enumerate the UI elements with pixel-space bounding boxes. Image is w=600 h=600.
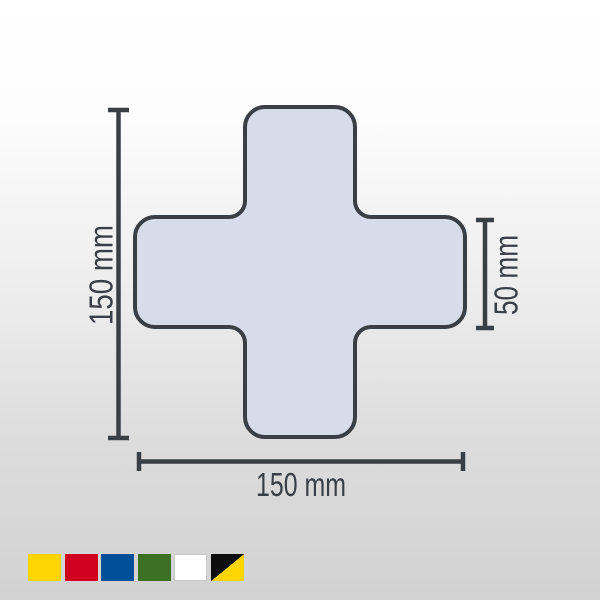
color-swatch-row xyxy=(28,554,244,581)
product-image: 150 mm 50 mm 150 mm xyxy=(0,0,600,600)
color-swatch-yellow[interactable] xyxy=(28,554,61,581)
color-swatch-white[interactable] xyxy=(174,554,207,581)
color-swatch-blue[interactable] xyxy=(101,554,134,581)
arm-width-dimension-label: 50 mm xyxy=(488,235,525,315)
color-swatch-red[interactable] xyxy=(65,554,98,581)
color-swatch-green[interactable] xyxy=(138,554,171,581)
cross-shape xyxy=(135,107,465,437)
height-dimension-label: 150 mm xyxy=(83,225,120,325)
product-diagram: 150 mm 50 mm 150 mm xyxy=(0,0,600,600)
color-swatch-black-yellow[interactable] xyxy=(211,554,244,581)
width-dimension-label: 150 mm xyxy=(256,466,346,503)
